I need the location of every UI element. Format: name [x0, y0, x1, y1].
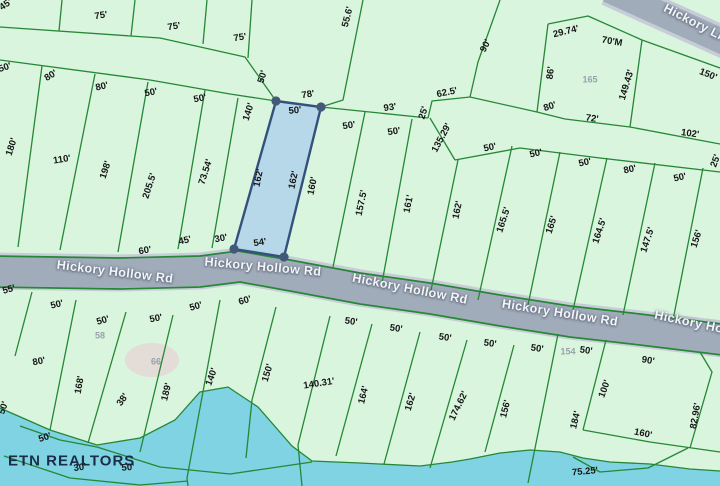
dimension-label: 157.5'	[355, 189, 370, 216]
dimension-label: 80'	[32, 356, 46, 368]
dimension-label: 60'	[138, 245, 152, 257]
dimension-label: 50'	[483, 142, 498, 154]
dimension-label: 140'	[242, 102, 257, 122]
dimension-label: 162'	[287, 170, 300, 190]
dimension-label: 50'	[189, 301, 204, 314]
dimension-label: 60'	[238, 295, 253, 308]
dimension-label: 150'	[698, 67, 718, 83]
dimension-label: 75'	[233, 32, 247, 43]
dimension-label: 50'	[96, 315, 111, 328]
dimension-label: 30'	[214, 233, 228, 245]
dimension-label: 50'	[144, 87, 158, 99]
dimension-label: 80'	[623, 164, 638, 176]
dimension-label: 50'	[579, 345, 593, 356]
dimension-label: 50'	[483, 338, 497, 349]
road-name-label: Hickory Ln	[662, 2, 720, 44]
dimension-label: 160'	[306, 176, 319, 196]
dimension-label: 90'	[641, 355, 655, 367]
dimension-label: 180'	[5, 137, 20, 157]
dimension-label: 50'	[438, 332, 452, 343]
dimension-label: 73.54'	[197, 158, 214, 186]
dimension-label: 50'	[387, 126, 401, 137]
dimension-label: 55.6'	[341, 6, 355, 28]
dimension-label: 50'	[37, 432, 52, 445]
dimension-label: 50'	[50, 299, 65, 311]
dimension-label: 184'	[569, 410, 583, 430]
dimension-label: 62.5'	[436, 86, 458, 99]
dimension-label: 70'M	[601, 36, 623, 49]
road-name-label: Hickory Hollow Rd	[351, 272, 468, 307]
dimension-label: 156'	[690, 229, 705, 249]
dimension-label: 50'	[578, 157, 593, 169]
road-name-label: Hickory Hollow Rd	[501, 298, 619, 329]
parcel-number: 154	[560, 348, 575, 357]
dimension-label: 102'	[680, 128, 699, 140]
dimension-label: 82.96'	[689, 402, 703, 429]
dimension-label: 50'	[342, 120, 356, 131]
dimension-label: 25'	[418, 105, 431, 120]
dimension-label: 50'	[149, 313, 163, 325]
dimension-label: 100'	[597, 379, 612, 399]
dimension-label: 50'	[529, 148, 544, 160]
dimension-label: 50'	[673, 172, 688, 184]
dimension-label: 162'	[252, 168, 265, 188]
dimension-label: 29.74'	[552, 24, 580, 40]
dimension-label: 50'	[530, 343, 544, 354]
dimension-label: 78'	[301, 89, 315, 100]
dimension-label: 147.5'	[639, 226, 656, 254]
dimension-label: 93'	[383, 102, 397, 113]
parcel-number: 58	[95, 332, 105, 341]
dimension-label: 50'	[193, 93, 207, 105]
dimension-label: 55'	[2, 284, 17, 297]
dimension-label: 50'	[389, 323, 403, 334]
dimension-label: 54'	[253, 237, 267, 248]
realtor-watermark: ETN REALTORS	[8, 454, 135, 469]
dimension-label: 45'	[178, 235, 193, 247]
dimension-label: 150'	[261, 363, 275, 383]
dimension-label: 149.43'	[618, 69, 636, 102]
dimension-label: 75.25'	[572, 466, 599, 478]
parcel-number: 66	[151, 358, 161, 367]
dimension-label: 162'	[404, 392, 418, 412]
plat-map[interactable]: 45'75'75'75'55.6'90'29.74'70'M86'165149.…	[0, 0, 720, 486]
labels-layer: 45'75'75'75'55.6'90'29.74'70'M86'165149.…	[0, 0, 720, 486]
dimension-label: 168'	[74, 375, 87, 394]
dimension-label: 38'	[115, 392, 130, 408]
dimension-label: 140'	[204, 367, 219, 387]
dimension-label: 50'	[0, 62, 13, 75]
dimension-label: 45'	[0, 0, 14, 13]
dimension-label: 86'	[546, 66, 557, 80]
dimension-label: 75'	[167, 21, 181, 32]
dimension-label: 165.5'	[495, 206, 512, 234]
dimension-label: 110'	[53, 154, 72, 166]
parcel-number: 165	[582, 76, 597, 85]
dimension-label: 174.62'	[448, 390, 470, 422]
dimension-label: 162'	[451, 200, 464, 220]
road-name-label: Hickory Hollow Rd	[56, 259, 174, 286]
dimension-label: 25'	[709, 153, 720, 168]
dimension-label: 80'	[43, 69, 59, 84]
dimension-label: 50'	[257, 69, 270, 84]
dimension-label: 156'	[499, 399, 513, 419]
road-name-label: Hickory Hollow Rd	[204, 256, 322, 279]
dimension-label: 164'	[357, 385, 371, 405]
dimension-label: 135.29'	[430, 122, 453, 154]
dimension-label: 189'	[160, 382, 174, 402]
dimension-label: 50'	[344, 316, 358, 327]
dimension-label: 164.5'	[591, 217, 608, 245]
dimension-label: 165'	[545, 215, 560, 235]
road-name-label: Hickory Hollow Rd	[653, 309, 720, 346]
dimension-label: 205.5'	[141, 172, 158, 200]
dimension-label: 140.31'	[303, 377, 335, 391]
dimension-label: 160'	[633, 427, 653, 440]
dimension-label: 72'	[585, 113, 599, 124]
dimension-label: 198'	[99, 160, 114, 180]
dimension-label: 90'	[479, 38, 493, 54]
dimension-label: 50'	[0, 400, 11, 415]
dimension-label: 80'	[542, 101, 557, 114]
dimension-label: 75'	[94, 10, 108, 21]
dimension-label: 80'	[95, 81, 110, 93]
dimension-label: 50'	[288, 106, 302, 117]
dimension-label: 161'	[402, 194, 415, 214]
